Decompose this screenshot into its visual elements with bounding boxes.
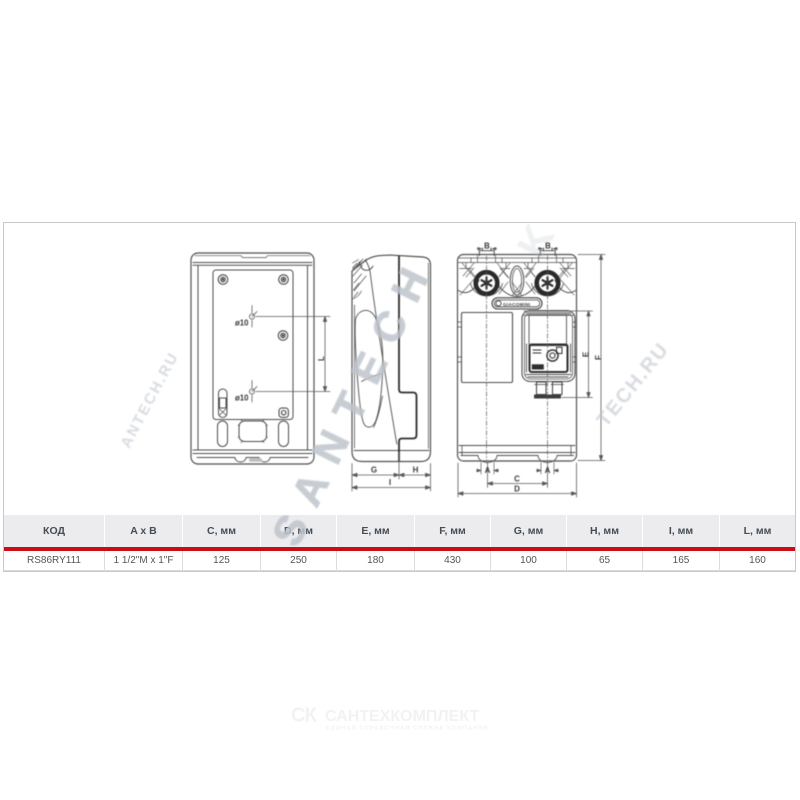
svg-text:D: D bbox=[514, 485, 520, 494]
svg-text:GIACOMINI: GIACOMINI bbox=[503, 302, 530, 307]
svg-text:L: L bbox=[317, 356, 326, 361]
svg-text:F: F bbox=[594, 355, 603, 360]
svg-text:E: E bbox=[582, 351, 591, 357]
svg-text:H: H bbox=[413, 466, 419, 475]
svg-text:C: C bbox=[514, 475, 520, 484]
svg-text:ø10: ø10 bbox=[235, 319, 249, 328]
svg-text:B: B bbox=[545, 242, 551, 251]
svg-text:ø10: ø10 bbox=[235, 394, 249, 403]
svg-text:A: A bbox=[545, 466, 551, 475]
svg-text:B: B bbox=[484, 242, 490, 251]
svg-text:I: I bbox=[389, 478, 391, 487]
svg-text:A: A bbox=[485, 466, 491, 475]
svg-text:G: G bbox=[371, 466, 377, 475]
